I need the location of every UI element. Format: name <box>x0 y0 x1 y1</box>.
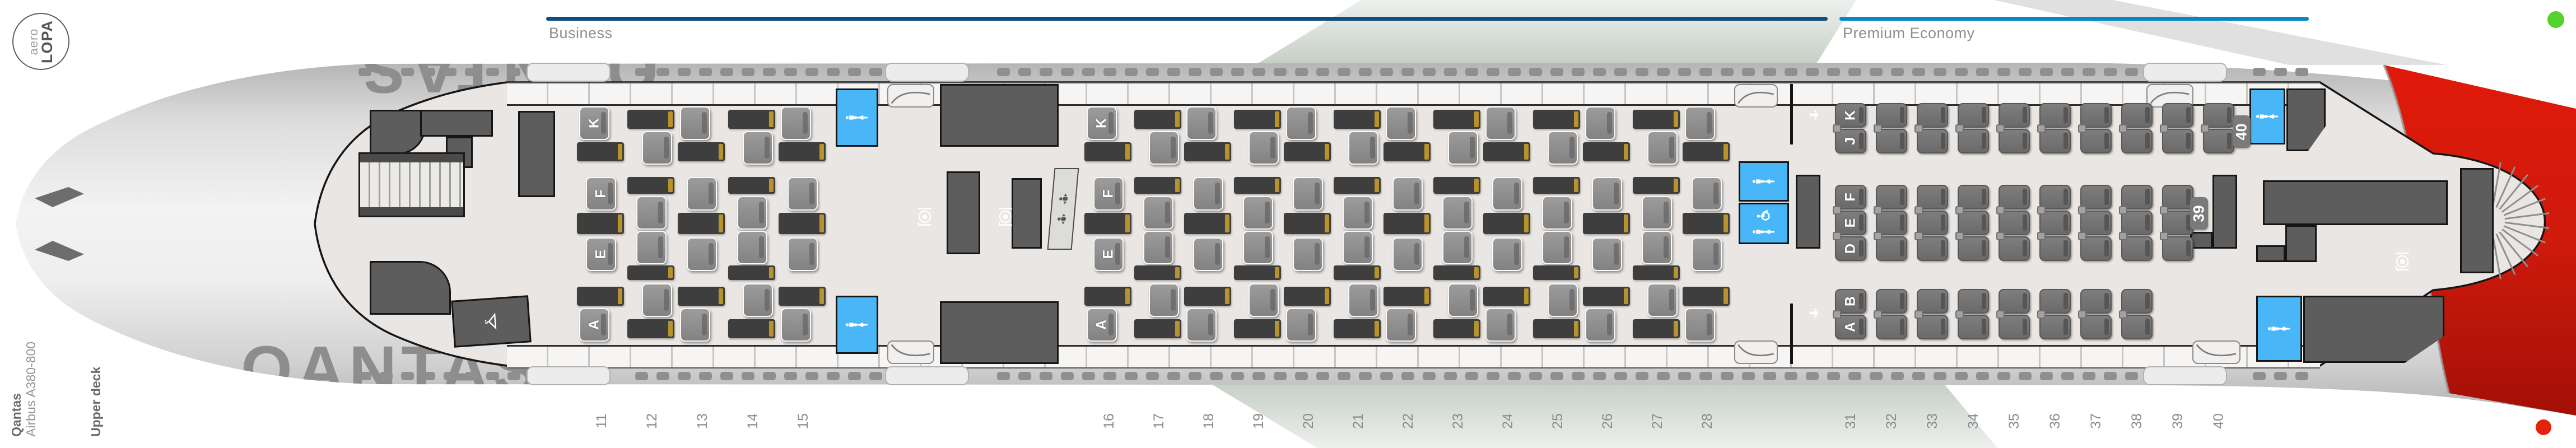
window-tick <box>380 68 393 76</box>
seat-console <box>1583 142 1630 161</box>
console-accent <box>1524 288 1529 304</box>
window-tick <box>869 372 882 380</box>
seat-17F <box>1143 196 1173 230</box>
cabin-divider-wall <box>1790 84 1793 144</box>
lavatory-occupant-icons <box>2260 109 2275 124</box>
row-number-39: 39 <box>2169 404 2186 438</box>
seat-console <box>627 265 674 280</box>
seat-console <box>1234 319 1281 338</box>
window-tick <box>2253 68 2266 76</box>
row-number-38: 38 <box>2128 404 2145 438</box>
window-tick <box>805 68 818 76</box>
row-number-24: 24 <box>1499 404 1516 438</box>
console-accent <box>1674 111 1678 127</box>
console-accent <box>1225 288 1229 304</box>
seat-20E <box>1293 237 1323 271</box>
meal-icon <box>997 207 1014 226</box>
exit-door-frame <box>527 366 611 385</box>
seat-23E <box>1442 231 1473 264</box>
window-tick <box>1636 372 1648 380</box>
console-accent <box>1624 288 1628 304</box>
baby-icon <box>1809 307 1819 319</box>
status-dot-red <box>2536 419 2551 435</box>
seat-14A <box>743 283 773 317</box>
seat-console <box>728 265 775 280</box>
window-tick <box>1252 372 1265 380</box>
window-tick <box>444 372 456 380</box>
seat-13E <box>687 237 717 271</box>
window-tick <box>1146 68 1159 76</box>
console-accent <box>1275 321 1279 337</box>
window-tick <box>1103 372 1116 380</box>
seat-armrest <box>1914 206 1923 214</box>
window-tick <box>763 68 776 76</box>
seat-22E <box>1392 237 1423 271</box>
console-accent <box>1275 111 1279 127</box>
lavatory <box>1739 161 1789 202</box>
window-tick <box>1997 68 2010 76</box>
window-tick <box>827 372 840 380</box>
exit-door-frame <box>2143 63 2227 82</box>
console-accent <box>719 214 723 232</box>
console-accent <box>668 179 673 192</box>
lavatory <box>2256 296 2302 362</box>
row-number-32: 32 <box>1883 404 1900 438</box>
lavatory-occupant-icons <box>849 110 865 125</box>
woman-icon <box>854 114 869 122</box>
window-tick <box>2061 372 2074 380</box>
seat-column-letter: F <box>1843 193 1859 201</box>
window-tick <box>2274 68 2287 76</box>
console-accent <box>1225 144 1229 160</box>
window-tick <box>1018 68 1031 76</box>
front-staircase <box>358 152 465 217</box>
seat-19A <box>1249 283 1279 317</box>
seat-console <box>678 213 725 234</box>
seat-armrest <box>1874 206 1882 214</box>
seat-console <box>1583 287 1630 306</box>
window-tick <box>1082 68 1095 76</box>
meal-icon-floor <box>996 208 1015 225</box>
window-tick <box>1636 68 1648 76</box>
seat-armrest <box>2037 232 2046 240</box>
window-tick <box>699 372 712 380</box>
window-tick <box>1210 372 1223 380</box>
coat-hanger-icon <box>485 312 498 330</box>
window-tick <box>1189 372 1201 380</box>
row-number-27: 27 <box>1649 404 1666 438</box>
console-accent <box>1325 214 1329 232</box>
window-tick <box>1721 372 1734 380</box>
seat-armrest <box>1874 124 1882 133</box>
window-tick <box>507 68 520 76</box>
wardrobe <box>451 295 532 347</box>
window-tick <box>401 68 414 76</box>
seat-console <box>1633 110 1680 129</box>
galley-monument <box>2303 296 2444 363</box>
seat-12K <box>642 131 672 165</box>
seat-column-letter: F <box>593 189 609 198</box>
seat-console <box>1234 177 1281 194</box>
seat-console <box>1134 265 1181 280</box>
window-tick <box>358 68 371 76</box>
bassinet-icon <box>1056 213 1068 225</box>
row-number-12: 12 <box>644 404 660 438</box>
window-tick <box>1103 68 1116 76</box>
exit-door <box>2192 340 2240 364</box>
seat-28F <box>1692 177 1722 211</box>
console-accent <box>668 267 673 278</box>
seat-armrest <box>1874 310 1882 319</box>
galley-monument <box>370 110 426 155</box>
seat-console <box>1134 319 1181 338</box>
window-tick <box>848 372 861 380</box>
meal-icon <box>2394 252 2411 271</box>
exit-door <box>1734 84 1778 108</box>
galley-monument <box>2460 168 2494 273</box>
seat-27K <box>1647 131 1678 165</box>
window-tick <box>2274 372 2287 380</box>
window-tick <box>1806 372 1819 380</box>
exit-door-frame <box>885 366 969 385</box>
window-tick <box>1550 372 1563 380</box>
seat-14F <box>737 196 767 230</box>
window-tick <box>1274 68 1287 76</box>
seat-column-letter: E <box>1101 250 1117 259</box>
seat-console <box>678 142 725 161</box>
row-number-22: 22 <box>1400 404 1417 438</box>
lavatory-occupant-icons <box>1756 174 1772 189</box>
window-tick <box>1125 68 1138 76</box>
seat-18K <box>1186 106 1217 140</box>
seat-armrest <box>1955 124 1964 133</box>
window-tick <box>1359 372 1372 380</box>
exit-door-frame <box>885 63 969 82</box>
seat-console <box>1583 213 1630 234</box>
window-tick <box>422 68 435 76</box>
seat-24A <box>1485 308 1516 342</box>
staircase-rail <box>360 207 463 216</box>
row-number-26: 26 <box>1599 404 1616 438</box>
galley-monument <box>370 261 451 315</box>
seat-armrest <box>2160 206 2168 214</box>
seat-23K <box>1448 131 1478 165</box>
row-end-tag-label: 39 <box>2190 205 2207 222</box>
seat-22K <box>1386 106 1416 140</box>
window-tick <box>1487 372 1499 380</box>
lavatory <box>836 296 878 354</box>
seat-15F <box>788 177 818 211</box>
seat-column-letter: J <box>1843 137 1859 145</box>
window-tick <box>1742 68 1755 76</box>
seat-armrest <box>1996 206 2005 214</box>
window-tick <box>1955 68 1968 76</box>
seat-armrest <box>2078 124 2086 133</box>
wheelchair-icon <box>1757 209 1771 221</box>
seat-console <box>1683 287 1730 306</box>
seat-19K <box>1249 131 1279 165</box>
seat-armrest <box>1874 232 1882 240</box>
window-tick <box>1338 372 1350 380</box>
window-tick <box>2295 372 2308 380</box>
window-tick <box>1806 68 1819 76</box>
console-accent <box>1275 179 1279 192</box>
seat-armrest <box>2119 206 2127 214</box>
seat-console <box>779 287 826 306</box>
seat-14K <box>743 131 773 165</box>
woman-icon <box>1761 178 1776 185</box>
seat-column-letter: D <box>1843 244 1859 254</box>
window-tick <box>1976 68 1989 76</box>
seat-25K <box>1548 131 1578 165</box>
seat-console <box>1134 110 1181 129</box>
seat-armrest <box>2078 310 2086 319</box>
lavatory-occupant-icons <box>2271 321 2287 336</box>
console-accent <box>1125 214 1130 232</box>
row-number-23: 23 <box>1450 404 1466 438</box>
exit-door <box>887 340 934 364</box>
window-tick <box>1167 372 1180 380</box>
window-tick <box>869 68 882 76</box>
row-number-33: 33 <box>1924 404 1941 438</box>
console-accent <box>1275 267 1279 278</box>
bassinet-icon <box>1059 193 1070 205</box>
window-tick <box>358 372 371 380</box>
window-tick <box>1827 372 1840 380</box>
window-tick <box>1444 372 1457 380</box>
seat-17K <box>1149 131 1179 165</box>
galley-monument <box>2190 232 2212 249</box>
seat-20K <box>1286 106 1316 140</box>
console-accent <box>1175 111 1180 127</box>
seat-25F <box>1542 196 1572 230</box>
window-tick <box>1316 68 1329 76</box>
row-number-15: 15 <box>795 404 812 438</box>
window-tick <box>1742 372 1755 380</box>
sidewall-band-bottom <box>507 345 2320 368</box>
seat-26K <box>1585 106 1615 140</box>
window-tick <box>1380 372 1393 380</box>
row-number-40: 40 <box>2210 404 2227 438</box>
window-tick <box>1295 68 1308 76</box>
console-accent <box>1175 267 1180 278</box>
window-tick <box>1018 372 1031 380</box>
window-tick <box>1316 372 1329 380</box>
window-tick <box>2083 68 2095 76</box>
seat-armrest <box>1914 124 1923 133</box>
console-accent <box>1524 144 1529 160</box>
window-tick <box>2083 372 2095 380</box>
seat-armrest <box>1955 310 1964 319</box>
window-tick <box>678 372 691 380</box>
seat-console <box>1483 213 1530 234</box>
seat-28A <box>1685 308 1715 342</box>
aerolopa-seatmap-page: QANTAS QANTAS BusinessPremium Economy ae… <box>0 0 2576 448</box>
row-number-19: 19 <box>1250 404 1267 438</box>
console-accent <box>1524 214 1529 232</box>
seat-28K <box>1685 106 1715 140</box>
window-tick <box>1189 68 1201 76</box>
window-tick <box>742 68 754 76</box>
seat-console <box>779 213 826 234</box>
window-tick <box>1274 372 1287 380</box>
seat-24K <box>1485 106 1516 140</box>
window-tick <box>1699 68 1712 76</box>
seat-console <box>1334 177 1381 194</box>
seat-console <box>1234 110 1281 129</box>
meal-icon-floor <box>2393 253 2412 270</box>
bassinet-partition <box>1047 168 1079 250</box>
window-tick <box>635 68 648 76</box>
console-accent <box>1674 321 1678 337</box>
exit-door <box>1734 340 1778 364</box>
window-tick <box>1912 68 1925 76</box>
window-tick <box>1699 372 1712 380</box>
seat-17A <box>1149 283 1179 317</box>
console-accent <box>1375 179 1379 192</box>
row-number-16: 16 <box>1101 404 1117 438</box>
seat-armrest <box>1833 310 1841 319</box>
seat-armrest <box>2119 232 2127 240</box>
seat-armrest <box>2119 124 2127 133</box>
window-tick <box>401 372 414 380</box>
seat-12E <box>636 231 667 264</box>
window-tick <box>1848 372 1861 380</box>
window-tick <box>380 372 393 380</box>
seat-14E <box>737 231 767 264</box>
seat-console <box>1483 142 1530 161</box>
window-tick <box>1614 372 1627 380</box>
seat-console <box>1433 110 1480 129</box>
woman-icon <box>1761 228 1776 236</box>
window-tick <box>1529 68 1542 76</box>
window-tick <box>1359 68 1372 76</box>
lavatory <box>836 88 878 147</box>
window-tick <box>1040 68 1052 76</box>
window-tick <box>1572 372 1585 380</box>
window-tick <box>422 372 435 380</box>
seat-25E <box>1542 231 1572 264</box>
row-number-14: 14 <box>744 404 761 438</box>
seat-console <box>1433 319 1480 338</box>
window-tick <box>1827 68 1840 76</box>
window-tick <box>805 372 818 380</box>
window-tick <box>1955 372 1968 380</box>
row-number-37: 37 <box>2088 404 2104 438</box>
row-number-11: 11 <box>593 404 610 438</box>
console-accent <box>1574 321 1578 337</box>
window-tick <box>635 372 648 380</box>
seat-armrest <box>2160 232 2168 240</box>
seat-26A <box>1585 308 1615 342</box>
seat-console <box>1084 287 1131 306</box>
row-end-tag-label: 40 <box>2233 123 2250 140</box>
window-tick <box>1785 68 1797 76</box>
window-tick <box>827 68 840 76</box>
seat-25A <box>1548 283 1578 317</box>
window-tick <box>1231 372 1244 380</box>
galley-monument <box>947 171 980 254</box>
window-tick <box>1508 68 1521 76</box>
console-accent <box>769 267 774 278</box>
seat-console <box>1184 287 1231 306</box>
seat-27E <box>1642 231 1672 264</box>
row-end-tag-39: 39 <box>2190 197 2208 230</box>
seat-24E <box>1492 237 1522 271</box>
exit-door-frame <box>527 63 611 82</box>
console-accent <box>1424 144 1429 160</box>
seat-console <box>728 177 775 194</box>
window-tick <box>1721 68 1734 76</box>
window-tick <box>1870 68 1883 76</box>
galley-monument <box>2256 245 2285 262</box>
seat-console <box>627 319 674 338</box>
seat-column-letter: K <box>1843 110 1859 120</box>
galley-monument <box>518 111 555 197</box>
seat-console <box>1134 177 1181 194</box>
seat-console <box>1433 265 1480 280</box>
seat-24F <box>1492 177 1522 211</box>
console-accent <box>769 179 774 192</box>
window-tick <box>1444 68 1457 76</box>
window-tick <box>1997 372 2010 380</box>
window-tick <box>1125 372 1138 380</box>
window-tick <box>1167 68 1180 76</box>
seat-27F <box>1642 196 1672 230</box>
seat-armrest <box>1996 310 2005 319</box>
console-accent <box>1474 267 1479 278</box>
baby-icon-floor <box>1808 308 1820 318</box>
window-tick <box>1401 372 1414 380</box>
window-tick <box>1934 68 1946 76</box>
window-tick <box>1210 68 1223 76</box>
cabin-divider-wall <box>1790 304 1793 364</box>
window-tick <box>2104 68 2117 76</box>
seat-22A <box>1386 308 1416 342</box>
seat-console <box>1184 213 1231 234</box>
lavatory-occupant-icons <box>849 318 865 332</box>
woman-icon <box>854 321 869 329</box>
galley-monument <box>1012 178 1042 249</box>
console-accent <box>668 321 673 337</box>
window-tick <box>1423 68 1436 76</box>
console-accent <box>819 288 824 304</box>
seat-22F <box>1392 177 1423 211</box>
window-tick <box>784 372 797 380</box>
window-tick <box>1891 372 1904 380</box>
seat-15E <box>788 237 818 271</box>
seat-armrest <box>2119 310 2127 319</box>
window-tick <box>1678 68 1691 76</box>
window-tick <box>1657 68 1670 76</box>
console-accent <box>1624 214 1628 232</box>
seat-21E <box>1343 231 1373 264</box>
seat-armrest <box>1996 124 2005 133</box>
console-accent <box>1723 288 1728 304</box>
window-tick <box>1678 372 1691 380</box>
window-tick <box>2019 68 2032 76</box>
seat-21K <box>1348 131 1378 165</box>
seat-console <box>1433 177 1480 194</box>
window-tick <box>678 68 691 76</box>
galley-monument <box>420 110 493 137</box>
console-accent <box>1574 267 1578 278</box>
galley-monument <box>1796 175 1820 249</box>
seat-console <box>1483 287 1530 306</box>
console-accent <box>1474 321 1479 337</box>
console-accent <box>618 288 622 304</box>
window-tick <box>720 372 733 380</box>
